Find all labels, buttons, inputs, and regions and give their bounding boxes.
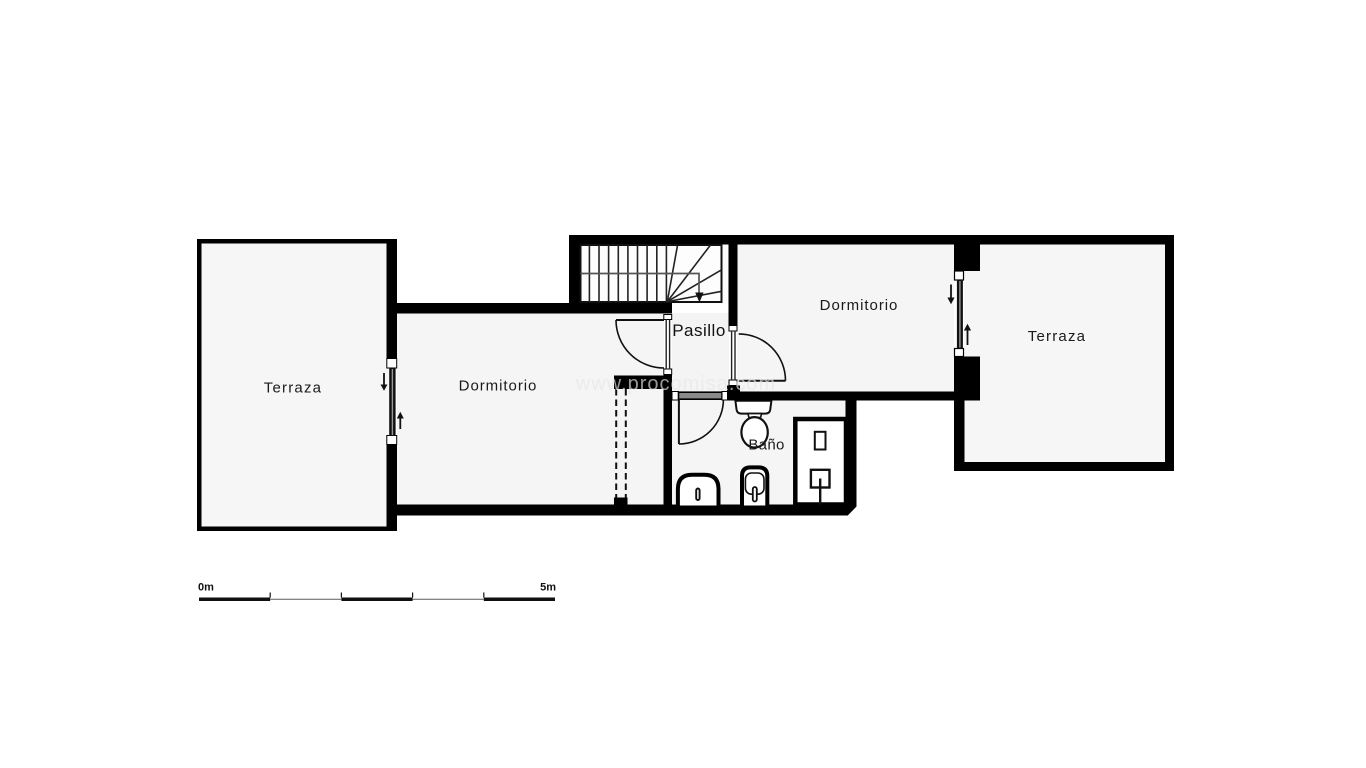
svg-text:Dormitorio: Dormitorio (459, 378, 538, 395)
svg-text:5m: 5m (540, 582, 556, 594)
svg-text:www.procomisa.com: www.procomisa.com (575, 373, 776, 395)
svg-text:Baño: Baño (748, 437, 784, 454)
svg-text:0m: 0m (198, 582, 214, 594)
svg-text:Terraza: Terraza (1028, 328, 1086, 345)
svg-text:Dormitorio: Dormitorio (820, 297, 899, 314)
svg-text:Pasillo: Pasillo (672, 321, 726, 340)
svg-text:Terraza: Terraza (264, 380, 322, 397)
